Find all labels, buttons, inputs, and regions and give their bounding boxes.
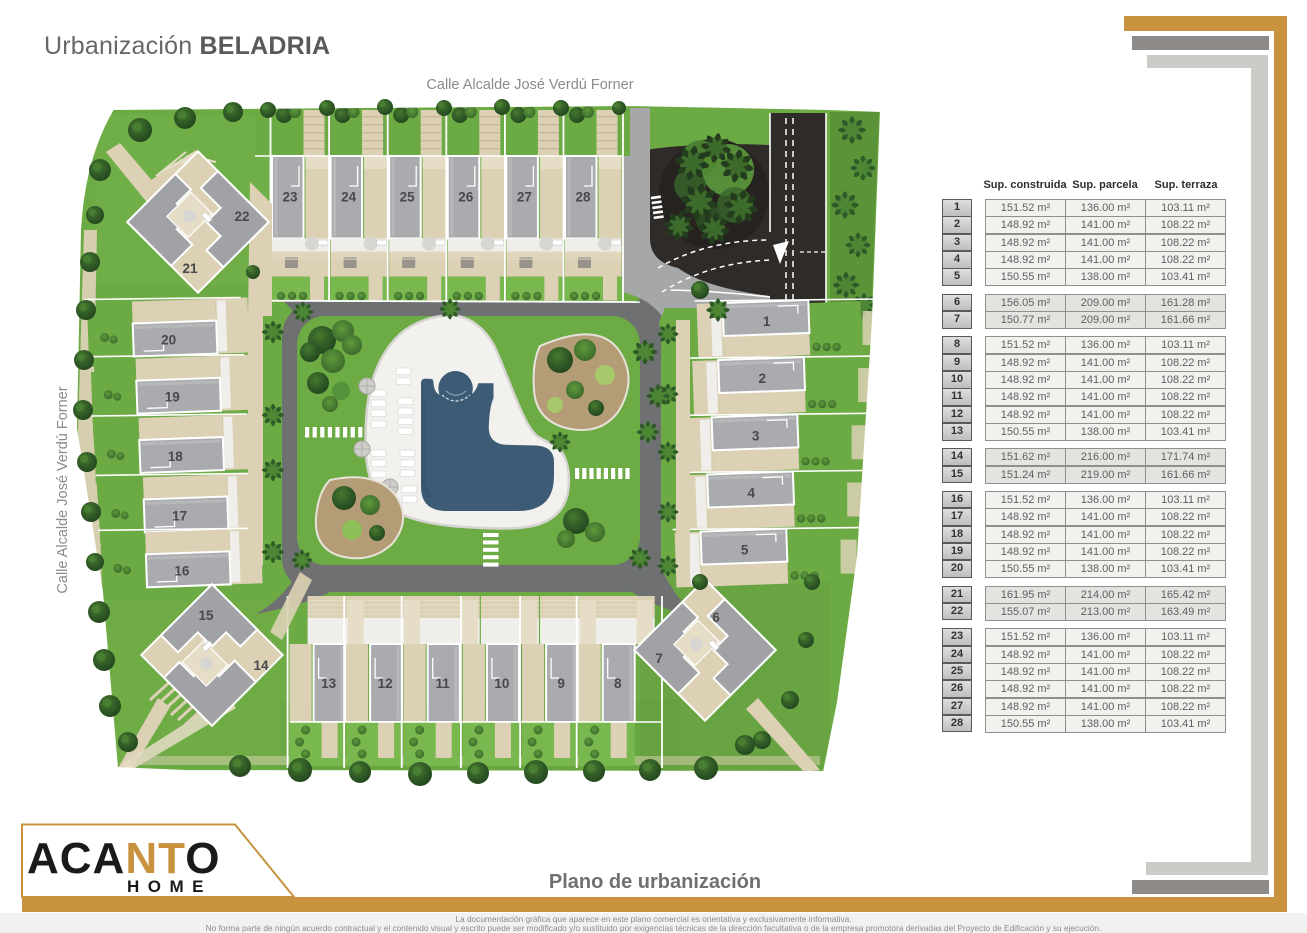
svg-text:17: 17 [172, 508, 187, 523]
svg-text:HOME: HOME [127, 877, 212, 896]
svg-text:26: 26 [458, 190, 474, 205]
svg-text:21: 21 [182, 261, 198, 276]
svg-text:28: 28 [575, 190, 591, 205]
svg-text:19: 19 [165, 390, 180, 405]
svg-text:9: 9 [557, 676, 565, 691]
svg-text:2: 2 [758, 371, 766, 386]
svg-text:23: 23 [282, 190, 298, 205]
svg-text:27: 27 [517, 190, 532, 205]
svg-text:22: 22 [234, 209, 249, 224]
svg-text:15: 15 [198, 608, 214, 623]
svg-text:5: 5 [741, 543, 749, 558]
svg-text:1: 1 [763, 314, 771, 329]
svg-text:16: 16 [174, 563, 190, 578]
svg-text:7: 7 [655, 651, 663, 666]
svg-text:ACANTO: ACANTO [27, 834, 220, 883]
svg-text:6: 6 [712, 610, 720, 625]
svg-text:10: 10 [494, 676, 509, 691]
svg-text:11: 11 [436, 676, 451, 691]
svg-text:25: 25 [400, 190, 416, 205]
svg-text:20: 20 [161, 333, 176, 348]
svg-text:24: 24 [341, 190, 357, 205]
svg-text:3: 3 [752, 428, 760, 443]
svg-text:4: 4 [747, 486, 755, 501]
svg-text:8: 8 [614, 676, 622, 691]
svg-text:13: 13 [321, 676, 337, 691]
svg-text:14: 14 [253, 658, 269, 673]
svg-text:18: 18 [168, 449, 184, 464]
svg-text:12: 12 [378, 676, 393, 691]
